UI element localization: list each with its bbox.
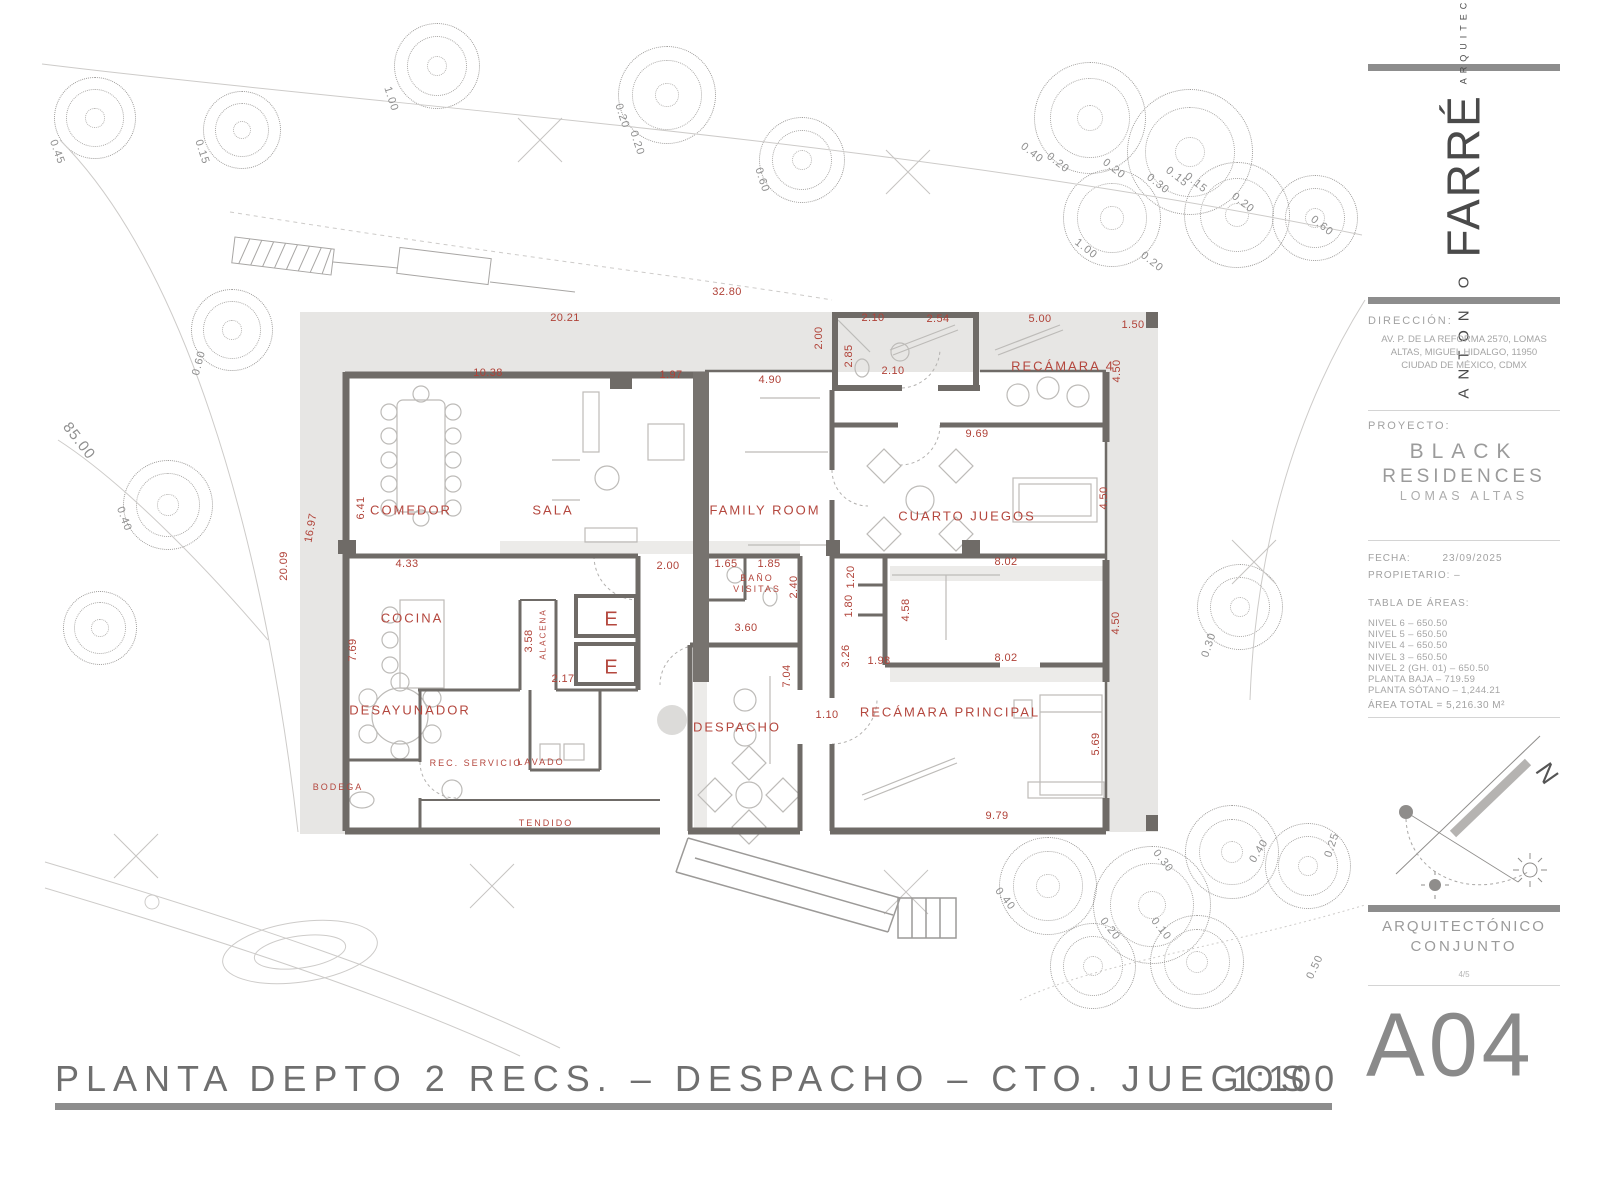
dim-label: 4.33	[395, 558, 418, 570]
room-label: LAVADO	[517, 757, 564, 767]
dim-label: 2.00	[656, 560, 679, 572]
dim-label: 3.60	[734, 622, 757, 634]
dim-label: 8.02	[994, 652, 1017, 664]
room-label: VISITAS	[733, 584, 781, 594]
dim-label: 3.58	[523, 629, 535, 652]
room-label: DESAYUNADOR	[349, 703, 470, 718]
ramp	[676, 838, 956, 938]
dim-label: 4.50	[1110, 611, 1122, 634]
floor-plan-drawing	[0, 0, 1600, 1200]
dim-label: 1.10	[815, 709, 838, 721]
room-label: FAMILY ROOM	[709, 503, 820, 518]
dim-label: 5.69	[1090, 732, 1102, 755]
room-label: DESPACHO	[693, 720, 781, 735]
dim-label: 7.04	[781, 664, 793, 687]
dim-label: 4.90	[758, 374, 781, 386]
room-label: E	[604, 657, 619, 680]
dim-label: 2.85	[843, 344, 855, 367]
dim-label: 5.00	[1028, 313, 1051, 325]
dim-label: 1.97	[659, 369, 682, 381]
dim-label: 9.79	[985, 810, 1008, 822]
dim-label: 8.02	[994, 556, 1017, 568]
dim-label: 1.80	[843, 594, 855, 617]
dim-label: 4.58	[900, 598, 912, 621]
room-label: E	[604, 609, 619, 632]
room-label: COCINA	[381, 611, 444, 626]
column-circle	[657, 705, 687, 735]
north-letter: N	[1530, 757, 1563, 790]
dim-label: 4.50	[1098, 486, 1110, 509]
dim-label: 32.80	[712, 286, 742, 298]
dim-label: 20.09	[278, 551, 290, 581]
dim-label: 2.17	[551, 673, 574, 685]
architectural-sheet: { "colors":{"dimension_red":"#b04238","r…	[0, 0, 1600, 1200]
dim-label: 6.41	[355, 496, 367, 519]
dim-label: 2.54	[926, 313, 949, 325]
dim-label: 10.38	[473, 367, 503, 379]
dim-label: 20.21	[550, 312, 580, 324]
room-label: SALA	[532, 503, 573, 518]
room-label: RECÁMARA PRINCIPAL	[860, 705, 1040, 720]
room-label: ALACENA	[539, 608, 548, 659]
room-label: CUARTO JUEGOS	[898, 509, 1035, 524]
dim-label: 2.10	[881, 365, 904, 377]
dim-label: 1.98	[867, 655, 890, 667]
room-label: TENDIDO	[519, 818, 574, 828]
dim-label: 1.65	[714, 558, 737, 570]
room-label: RECÁMARA 4	[1011, 359, 1115, 374]
dim-label: 2.40	[788, 575, 800, 598]
north-arrow: N	[1378, 722, 1563, 900]
dim-label: 2.10	[861, 312, 884, 324]
dim-label: 1.85	[757, 558, 780, 570]
fence-structures	[232, 237, 575, 292]
room-label: BAÑO	[740, 573, 774, 583]
dim-label: 1.50	[1121, 319, 1144, 331]
room-label: COMEDOR	[370, 503, 452, 518]
room-label: REC. SERVICIO	[430, 758, 523, 768]
dim-label: 3.26	[840, 644, 852, 667]
dim-label: 9.69	[965, 428, 988, 440]
dim-label: 7.69	[347, 638, 359, 661]
dim-label: 1.20	[845, 565, 857, 588]
dim-label: 2.00	[813, 326, 825, 349]
room-label: BODEGA	[313, 782, 364, 792]
